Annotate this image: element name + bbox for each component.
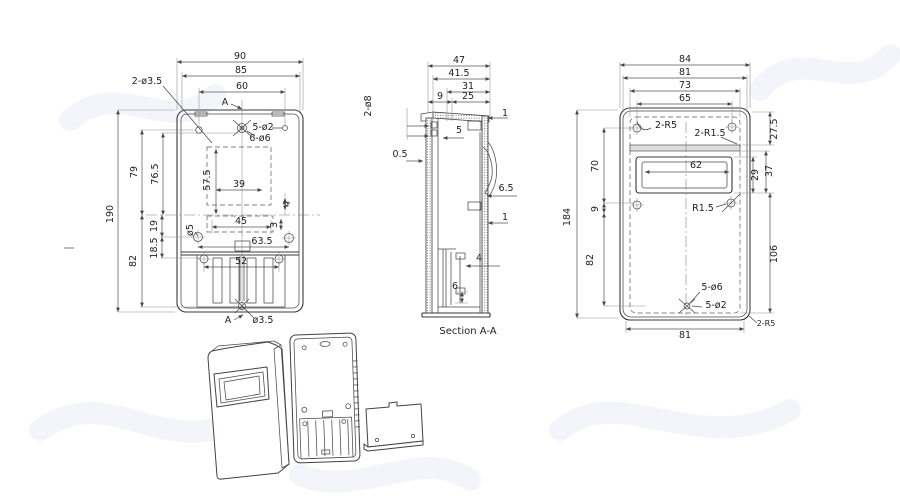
rear-bezel-band (630, 145, 740, 151)
section-arrow-top (231, 104, 242, 109)
dim-60: 60 (236, 81, 248, 92)
section-base (422, 313, 490, 317)
dim-6-5: 6.5 (498, 183, 513, 194)
dim-6x-d6: 6-ø6 (249, 133, 270, 144)
dim-84: 84 (679, 54, 691, 65)
front-hole-small (283, 126, 288, 131)
dim-82: 82 (128, 255, 139, 267)
section-catch-upper (456, 253, 465, 259)
dim-19: 19 (149, 220, 160, 232)
dim-70: 70 (590, 160, 601, 172)
rear-view: 848173652-R52-R1.527.562293770184982106R… (562, 54, 780, 341)
section-extension-lines (407, 62, 490, 303)
dim-d5: ø5 (185, 224, 196, 236)
dim-90: 90 (234, 51, 246, 62)
dim-79: 79 (129, 166, 140, 178)
iso-cover-face (366, 402, 423, 447)
iso-battery-cover (364, 402, 423, 451)
dim-29: 29 (750, 169, 761, 181)
dim-76-5: 76.5 (150, 163, 161, 184)
section-view: Section A-A 4741.5319252-ø8510.56.5146 (363, 55, 517, 337)
front-view: 9085602-ø3.5A5-ø26-ø63957.57976.51901918… (64, 51, 320, 326)
dim-5x-d2: 5-ø2 (252, 122, 273, 133)
section-compartment-lines (438, 249, 480, 307)
dim-37: 37 (764, 165, 775, 177)
section-arrow-bottom (234, 315, 243, 320)
dim-85: 85 (235, 65, 247, 76)
dim-5x-d2-rear: 5-ø2 (705, 300, 726, 311)
dim-62: 62 (690, 160, 702, 171)
front-window-hidden-outline (207, 147, 271, 205)
dim-2x-r5-bottom: 2-R5 (757, 319, 776, 328)
dim-63-5: 63.5 (251, 236, 272, 247)
dim-65: 65 (679, 93, 691, 104)
section-marker-a-bottom: A (225, 315, 232, 326)
dim-27-5: 27.5 (769, 118, 780, 139)
section-top-tab (468, 121, 481, 130)
rear-body-inner-line (623, 111, 747, 317)
dim-45: 45 (235, 216, 247, 227)
iso-front-shell-body (208, 342, 289, 479)
section-rear-wall (482, 116, 488, 313)
dim-5x-d6: 5-ø6 (701, 282, 722, 293)
dim-18-5: 18.5 (149, 237, 160, 258)
dim-47: 47 (453, 55, 465, 66)
dim-41-5: 41.5 (448, 68, 469, 79)
dim-81-top: 81 (679, 67, 691, 78)
dim-9-rear: 9 (590, 206, 601, 212)
iso-views (208, 333, 423, 479)
dim-9-top: 9 (437, 91, 443, 102)
section-inner-wall-lines (438, 118, 480, 313)
dim-1-top: 1 (502, 108, 508, 119)
dim-57-5: 57.5 (202, 169, 213, 190)
dim-4: 4 (282, 201, 293, 207)
dim-4s: 4 (476, 253, 482, 264)
dim-d3-5: ø3.5 (253, 315, 274, 326)
dim-106: 106 (769, 245, 780, 263)
drawing-canvas: 9085602-ø3.5A5-ø26-ø63957.57976.51901918… (0, 0, 900, 500)
dim-r1-5: R1.5 (692, 203, 714, 214)
iso-front-shell (208, 341, 289, 479)
dim-5: 5 (456, 125, 462, 136)
dim-6s: 6 (452, 281, 458, 292)
watermark-stroke (300, 468, 470, 482)
rear-window-inner (642, 162, 727, 188)
dim-190: 190 (105, 205, 116, 223)
front-separator-lines (181, 252, 299, 255)
iso-back-shell (290, 333, 361, 463)
rear-window-outer (636, 157, 732, 193)
dim-2x-r5-top: 2-R5 (655, 120, 677, 131)
section-caption: Section A-A (439, 326, 496, 337)
dim-25: 25 (462, 91, 474, 102)
dim-184: 184 (562, 208, 573, 226)
watermark-stroke (70, 95, 215, 120)
dim-0-5: 0.5 (392, 149, 407, 160)
dim-2x-d8: 2-ø8 (363, 95, 374, 116)
dim-73: 73 (679, 80, 691, 91)
watermark-stroke (760, 55, 890, 90)
rear-body-outline (620, 108, 750, 320)
watermark-stroke (560, 410, 790, 430)
dim-2x-r1-5: 2-R1.5 (694, 128, 725, 139)
dim-1-bottom: 1 (502, 212, 508, 223)
dim-39: 39 (233, 179, 245, 190)
engineering-drawing: 9085602-ø3.5A5-ø26-ø63957.57976.51901918… (0, 0, 900, 500)
section-mid-tab (468, 202, 481, 210)
dim-52: 52 (235, 256, 247, 267)
section-marker-a-top: A (222, 97, 229, 108)
dim-81-bottom: 81 (679, 330, 691, 341)
dim-2x-d3-5: 2-ø3.5 (132, 76, 162, 87)
section-top-wall (433, 112, 489, 122)
front-clip-tab (235, 241, 250, 251)
section-front-wall (426, 118, 432, 313)
rear-extension-lines (577, 62, 774, 333)
dim-82-rear: 82 (585, 254, 596, 266)
watermark-stroke (40, 413, 240, 432)
dim-3: 3 (269, 222, 280, 228)
